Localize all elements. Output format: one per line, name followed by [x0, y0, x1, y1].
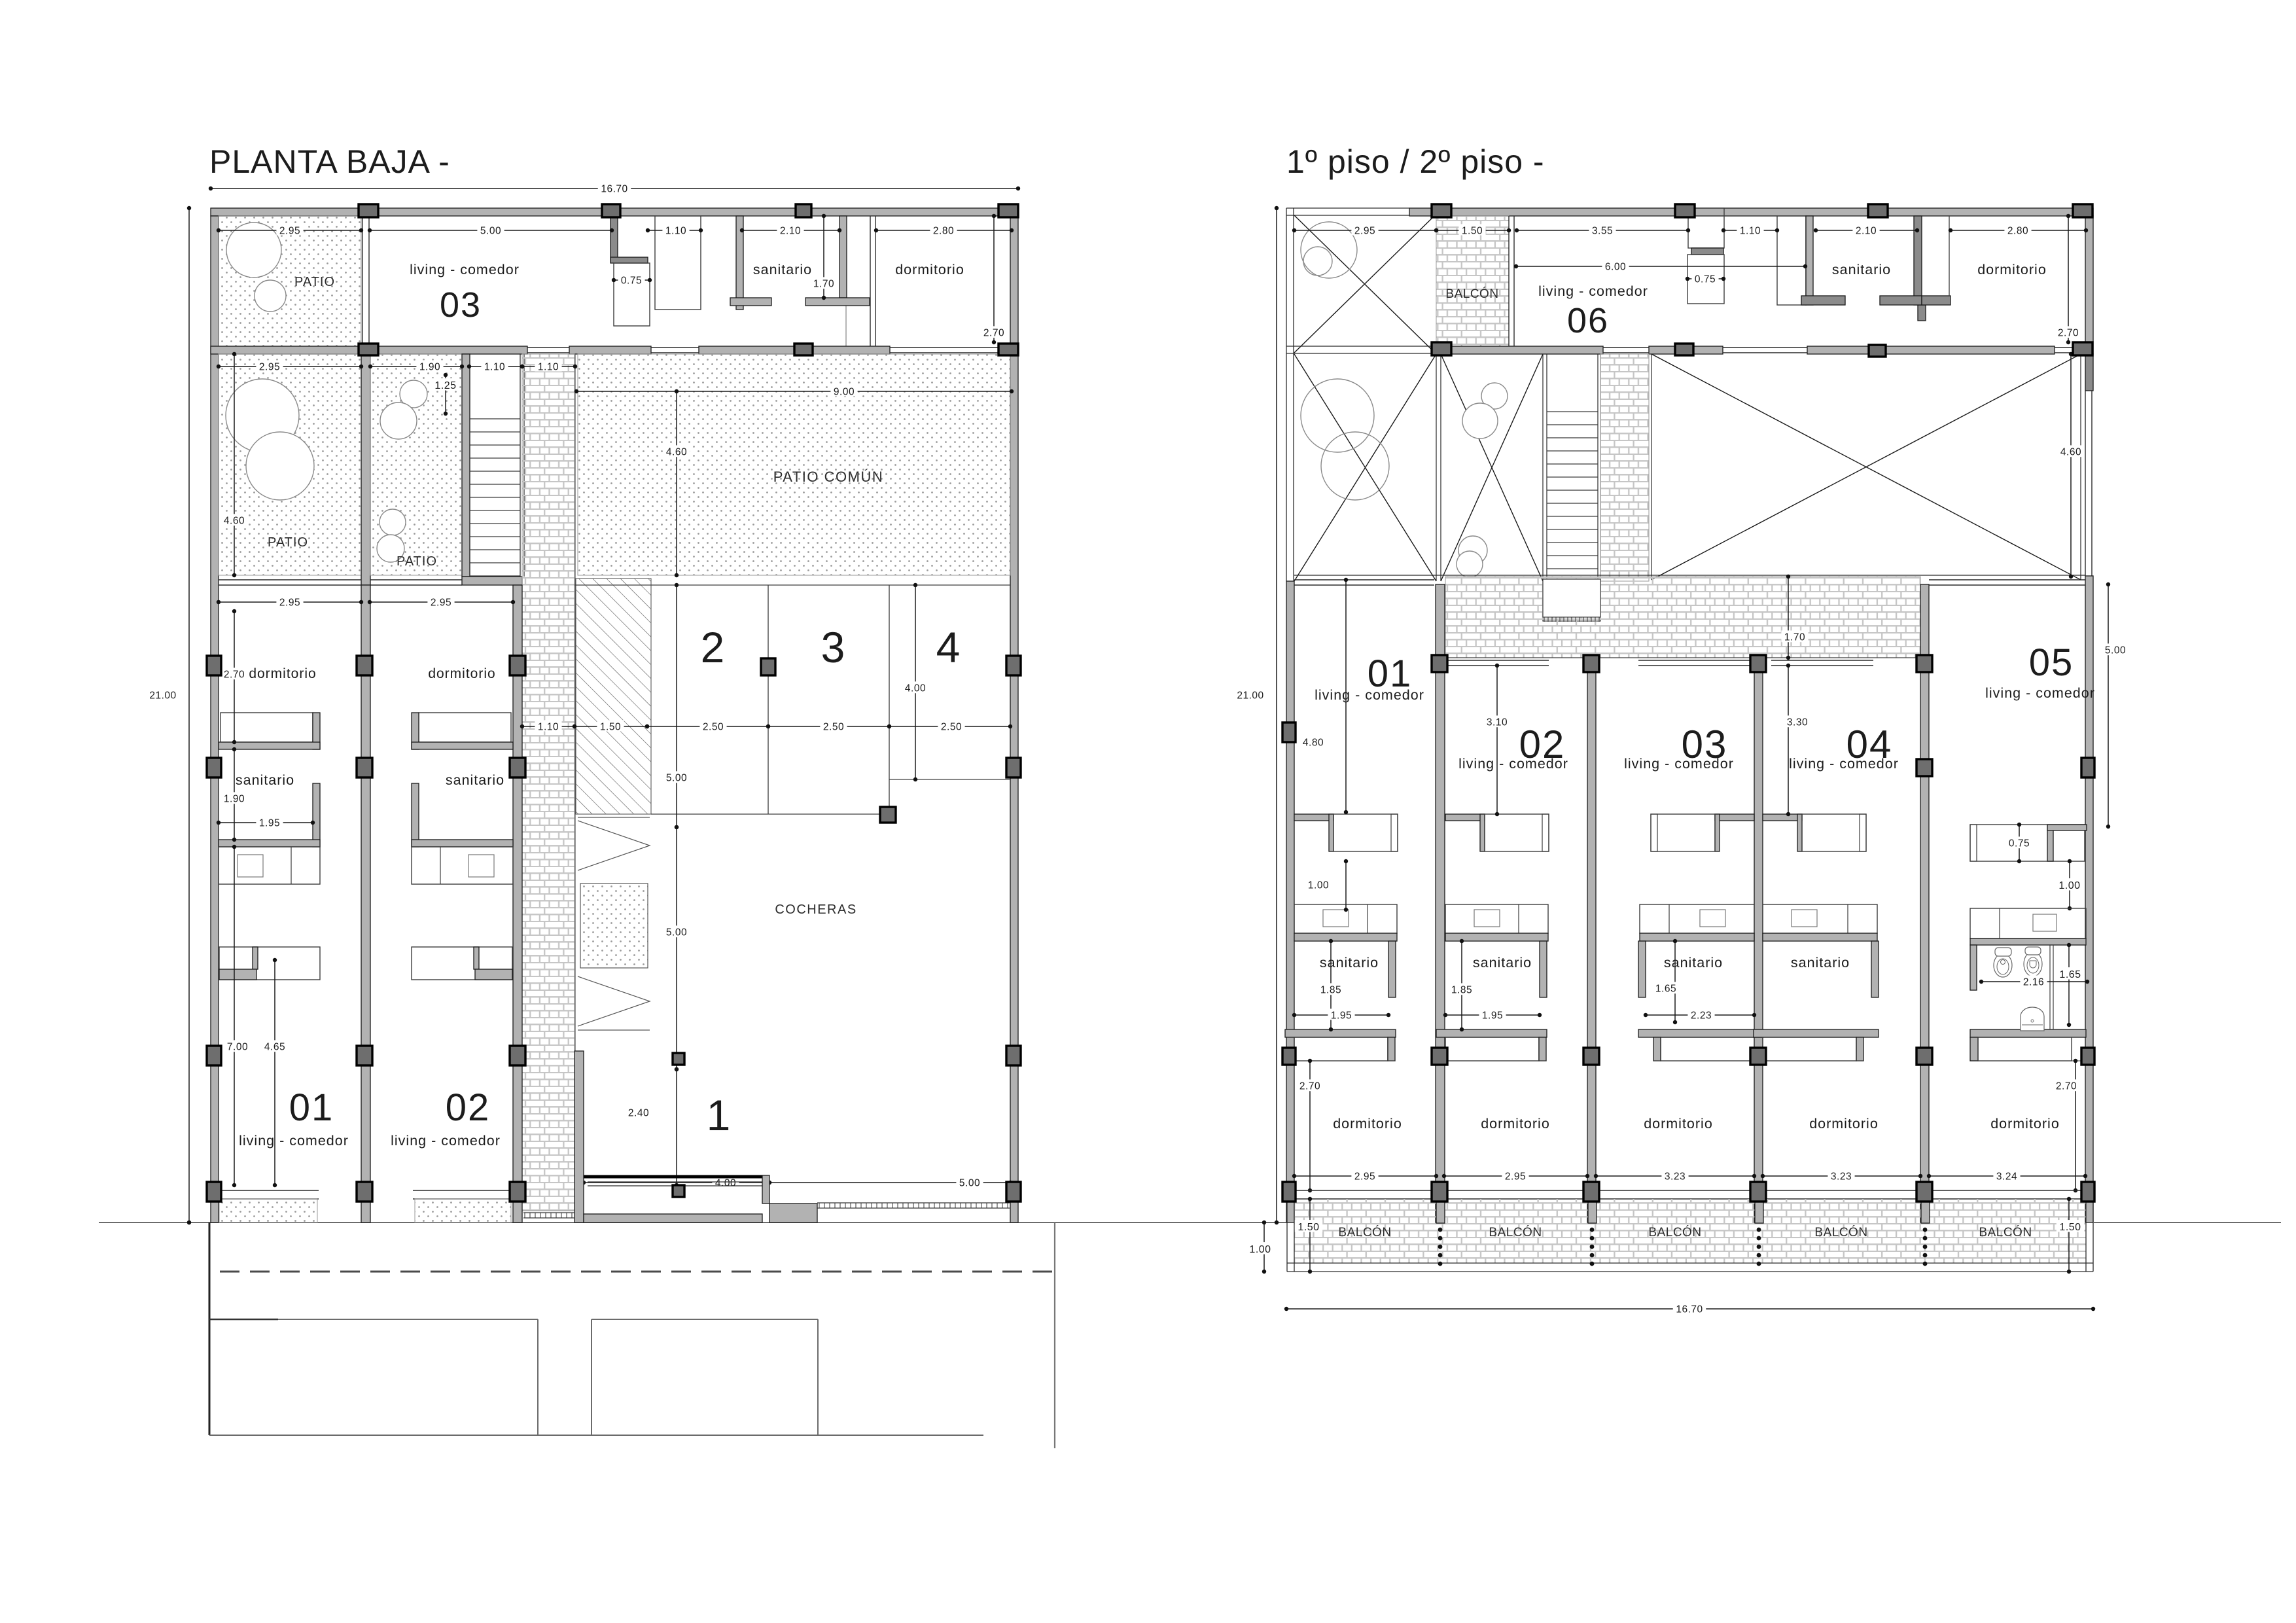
svg-text:living - comedor: living - comedor — [1538, 283, 1648, 299]
svg-text:2.70: 2.70 — [224, 669, 245, 681]
svg-text:6.00: 6.00 — [1605, 262, 1626, 273]
svg-text:1.10: 1.10 — [538, 722, 559, 733]
svg-text:1.65: 1.65 — [1655, 984, 1676, 995]
svg-text:1.65: 1.65 — [2059, 969, 2081, 980]
svg-text:2.95: 2.95 — [279, 226, 300, 237]
svg-text:sanitario: sanitario — [1832, 262, 1891, 277]
svg-text:sanitario: sanitario — [753, 262, 812, 277]
svg-text:dormitorio: dormitorio — [1977, 262, 2047, 277]
svg-text:3.10: 3.10 — [1487, 717, 1508, 728]
svg-text:sanitario: sanitario — [1791, 955, 1850, 971]
svg-text:0.75: 0.75 — [1695, 274, 1716, 285]
svg-text:1.50: 1.50 — [600, 722, 621, 733]
svg-text:1.85: 1.85 — [1451, 985, 1472, 996]
svg-text:1.00: 1.00 — [1249, 1244, 1271, 1255]
svg-text:dormitorio: dormitorio — [895, 262, 964, 277]
svg-text:2.50: 2.50 — [941, 722, 962, 733]
svg-text:4.60: 4.60 — [224, 516, 245, 527]
svg-text:1.95: 1.95 — [1331, 1010, 1352, 1022]
svg-text:01: 01 — [289, 1086, 334, 1129]
svg-text:1º piso / 2º piso -: 1º piso / 2º piso - — [1286, 143, 1545, 180]
svg-text:2.70: 2.70 — [2056, 1081, 2077, 1092]
svg-text:2.70: 2.70 — [2058, 328, 2079, 339]
svg-text:living - comedor: living - comedor — [410, 262, 520, 277]
svg-text:PATIO: PATIO — [268, 535, 308, 550]
svg-text:2.80: 2.80 — [933, 226, 954, 237]
svg-text:dormitorio: dormitorio — [428, 666, 495, 681]
svg-text:2.70: 2.70 — [1299, 1081, 1320, 1092]
svg-text:2.95: 2.95 — [1354, 226, 1375, 237]
svg-text:1.00: 1.00 — [2058, 880, 2080, 891]
svg-text:living - comedor: living - comedor — [1458, 756, 1568, 772]
svg-text:BALCÓN: BALCÓN — [1648, 1225, 1701, 1240]
svg-text:living - comedor: living - comedor — [391, 1133, 501, 1149]
svg-text:living - comedor: living - comedor — [1315, 687, 1424, 703]
svg-text:1.10: 1.10 — [538, 362, 559, 373]
svg-text:02: 02 — [446, 1086, 491, 1129]
svg-text:2.10: 2.10 — [1856, 226, 1877, 237]
svg-text:1.50: 1.50 — [1298, 1222, 1319, 1233]
svg-text:sanitario: sanitario — [1473, 955, 1532, 971]
svg-text:PATIO: PATIO — [397, 554, 437, 569]
svg-text:1.90: 1.90 — [419, 362, 440, 373]
svg-text:2.50: 2.50 — [823, 722, 844, 733]
svg-text:2.95: 2.95 — [259, 362, 280, 373]
svg-text:7.00: 7.00 — [227, 1042, 248, 1053]
svg-text:dormitorio: dormitorio — [1990, 1116, 2060, 1132]
svg-text:dormitorio: dormitorio — [1481, 1116, 1550, 1132]
svg-text:living - comedor: living - comedor — [1985, 685, 2095, 701]
svg-text:sanitario: sanitario — [1320, 955, 1379, 971]
svg-text:dormitorio: dormitorio — [1333, 1116, 1402, 1132]
svg-text:5.00: 5.00 — [480, 226, 501, 237]
svg-text:BALCÓN: BALCÓN — [1338, 1225, 1391, 1240]
svg-text:2.80: 2.80 — [2007, 226, 2028, 237]
svg-text:06: 06 — [1567, 301, 1609, 340]
svg-text:2.10: 2.10 — [780, 226, 801, 237]
svg-text:3.23: 3.23 — [1665, 1171, 1686, 1183]
svg-text:1.70: 1.70 — [1784, 632, 1805, 643]
svg-text:4.00: 4.00 — [905, 683, 926, 694]
svg-text:2.40: 2.40 — [628, 1108, 649, 1119]
svg-text:2.16: 2.16 — [2023, 977, 2044, 988]
svg-text:1.10: 1.10 — [1740, 226, 1761, 237]
svg-text:PLANTA BAJA -: PLANTA BAJA - — [209, 143, 450, 180]
svg-text:2.95: 2.95 — [279, 597, 300, 609]
svg-text:4.60: 4.60 — [2060, 447, 2081, 458]
svg-text:21.00: 21.00 — [149, 690, 176, 702]
svg-text:COCHERAS: COCHERAS — [775, 902, 857, 917]
svg-text:living - comedor: living - comedor — [239, 1133, 349, 1149]
svg-text:1.00: 1.00 — [1308, 880, 1329, 891]
svg-text:2.95: 2.95 — [431, 597, 451, 609]
svg-text:1: 1 — [707, 1091, 731, 1139]
svg-text:4.60: 4.60 — [666, 447, 687, 458]
svg-text:2.70: 2.70 — [983, 328, 1004, 339]
svg-text:1.50: 1.50 — [2059, 1222, 2081, 1233]
svg-text:dormitorio: dormitorio — [1644, 1116, 1713, 1132]
svg-text:1.10: 1.10 — [484, 362, 505, 373]
svg-text:5.00: 5.00 — [2105, 645, 2126, 656]
svg-text:16.70: 16.70 — [601, 184, 627, 195]
svg-text:BALCÓN: BALCÓN — [1445, 287, 1498, 301]
svg-text:BALCÓN: BALCÓN — [1979, 1225, 2032, 1240]
svg-text:PATIO COMÚN: PATIO COMÚN — [773, 469, 883, 485]
svg-text:4.65: 4.65 — [264, 1042, 285, 1053]
svg-text:0.75: 0.75 — [621, 276, 642, 287]
svg-text:3.23: 3.23 — [1831, 1171, 1852, 1183]
svg-text:16.70: 16.70 — [1676, 1304, 1703, 1315]
svg-text:PATIO: PATIO — [294, 275, 335, 289]
svg-text:21.00: 21.00 — [1237, 690, 1263, 702]
svg-text:1.70: 1.70 — [813, 279, 834, 290]
svg-text:1.50: 1.50 — [1462, 226, 1483, 237]
svg-text:1.25: 1.25 — [434, 380, 456, 391]
svg-text:dormitorio: dormitorio — [249, 666, 316, 681]
svg-text:1.10: 1.10 — [665, 226, 686, 237]
svg-text:sanitario: sanitario — [1664, 955, 1723, 971]
svg-text:3.55: 3.55 — [1592, 226, 1613, 237]
svg-text:2: 2 — [701, 623, 725, 671]
svg-text:2.23: 2.23 — [1691, 1010, 1712, 1022]
svg-text:3: 3 — [821, 623, 845, 671]
svg-text:2.50: 2.50 — [703, 722, 724, 733]
svg-text:1.95: 1.95 — [1482, 1010, 1503, 1022]
svg-text:03: 03 — [440, 285, 482, 325]
svg-text:living - comedor: living - comedor — [1789, 756, 1899, 772]
svg-text:BALCÓN: BALCÓN — [1814, 1225, 1867, 1240]
svg-text:3.24: 3.24 — [1996, 1171, 2017, 1183]
svg-text:1.95: 1.95 — [259, 818, 280, 829]
svg-text:3.30: 3.30 — [1787, 717, 1808, 728]
svg-text:4.80: 4.80 — [1303, 738, 1324, 749]
svg-text:5.00: 5.00 — [666, 927, 687, 938]
svg-text:4.00: 4.00 — [715, 1178, 736, 1189]
svg-text:9.00: 9.00 — [834, 387, 855, 398]
svg-text:living - comedor: living - comedor — [1624, 756, 1734, 772]
svg-text:dormitorio: dormitorio — [1809, 1116, 1879, 1132]
svg-text:4: 4 — [936, 623, 961, 671]
svg-text:1.90: 1.90 — [224, 794, 245, 805]
svg-text:05: 05 — [2029, 641, 2074, 684]
svg-text:2.95: 2.95 — [1505, 1171, 1526, 1183]
svg-text:5.00: 5.00 — [959, 1178, 980, 1189]
svg-text:sanitario: sanitario — [236, 772, 294, 788]
svg-text:0.75: 0.75 — [2009, 838, 2030, 849]
svg-text:sanitario: sanitario — [446, 772, 504, 788]
svg-text:2.95: 2.95 — [1354, 1171, 1375, 1183]
svg-text:BALCÓN: BALCÓN — [1489, 1225, 1542, 1240]
svg-text:1.85: 1.85 — [1320, 985, 1341, 996]
svg-text:5.00: 5.00 — [666, 773, 687, 784]
